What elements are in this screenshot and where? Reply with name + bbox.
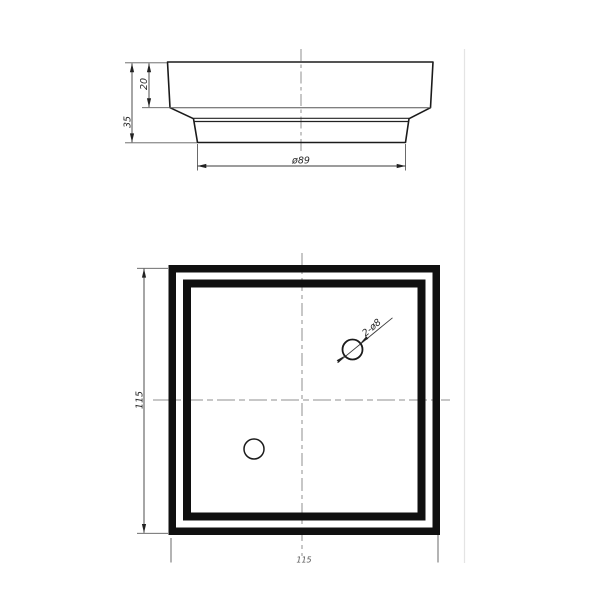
dim-label-plan-width: 115 [296, 556, 311, 565]
dim-label-base-diameter: ø89 [291, 156, 310, 167]
plan-view: 2-ø8 115 115 [135, 253, 451, 565]
hole-top-right [343, 340, 363, 360]
dim-label-plan-height: 115 [135, 391, 146, 409]
hole-callout-label: 2-ø8 [360, 317, 383, 339]
hole-leader-arrow-lower [337, 356, 345, 363]
dim-label-total-height: 35 [123, 116, 134, 128]
drawing-canvas: 35 20 ø89 2-ø8 115 115 [0, 0, 600, 600]
dim-label-top-height: 20 [139, 78, 150, 90]
profile-outline [168, 62, 434, 143]
hole-bottom-left [244, 439, 264, 459]
technical-drawing-page: 35 20 ø89 2-ø8 115 115 [0, 0, 600, 600]
side-profile-view: 35 20 ø89 [123, 49, 434, 171]
